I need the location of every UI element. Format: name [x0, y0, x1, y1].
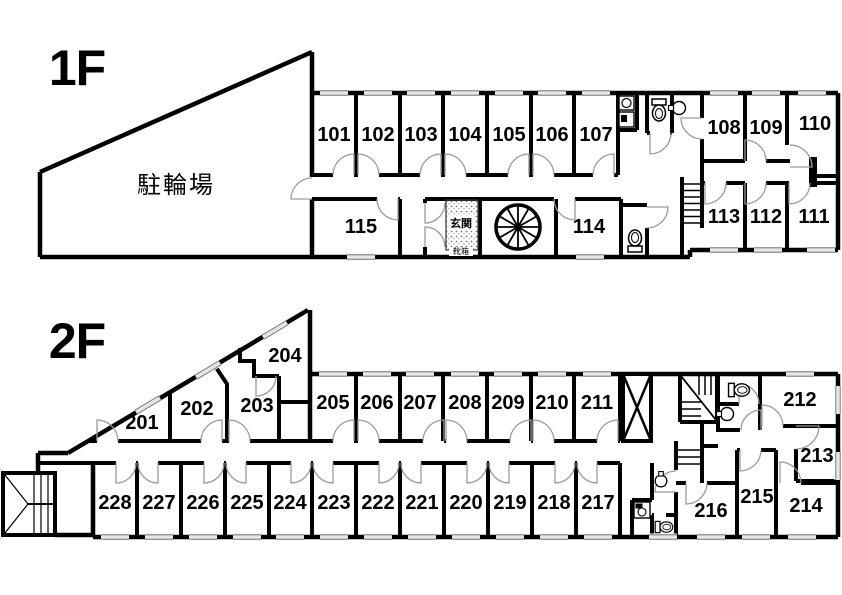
window: [835, 452, 842, 480]
room-label-107: 107: [579, 124, 612, 146]
window: [408, 534, 436, 541]
window: [649, 534, 677, 541]
room-label-204: 204: [268, 345, 302, 367]
window: [786, 371, 814, 378]
window: [347, 254, 375, 261]
room-label-215: 215: [740, 486, 773, 508]
toilet-icon: [628, 230, 642, 252]
bike-parking-label: 駐輪場: [137, 172, 215, 199]
room-label-226: 226: [186, 492, 219, 514]
elevator-shaft: [623, 374, 651, 441]
room-label-221: 221: [405, 492, 438, 514]
room-label-201: 201: [125, 412, 158, 434]
room-label-217: 217: [581, 492, 614, 514]
floor-plan-page: 玄関 靴箱 1F 駐輪場 101 102 103 104 105 106 107…: [0, 0, 842, 595]
window: [754, 247, 782, 254]
window: [452, 534, 480, 541]
window: [584, 534, 612, 541]
window: [451, 90, 479, 97]
window: [798, 90, 826, 97]
room-label-202: 202: [180, 398, 213, 420]
floor-title-1f: 1F: [49, 40, 105, 96]
room-label-211: 211: [581, 392, 613, 414]
laundry-sink-icons: [619, 96, 634, 127]
window: [788, 534, 816, 541]
floor-plan-svg: 玄関 靴箱 1F 駐輪場 101 102 103 104 105 106 107…: [0, 0, 842, 595]
room-label-101: 101: [317, 124, 350, 146]
room-label-104: 104: [448, 124, 482, 146]
window: [540, 534, 568, 541]
window: [538, 90, 566, 97]
window: [233, 534, 261, 541]
window: [320, 534, 348, 541]
room-label-223: 223: [317, 492, 350, 514]
room-label-205: 205: [316, 392, 349, 414]
stair-straight-1f: [683, 184, 701, 223]
room-label-228: 228: [98, 492, 131, 514]
window: [710, 90, 738, 97]
window: [583, 371, 611, 378]
window: [697, 534, 725, 541]
window: [189, 534, 217, 541]
window: [276, 534, 304, 541]
toilet-icon: [655, 521, 673, 532]
corridor-end-cap: [809, 157, 817, 187]
window: [406, 371, 434, 378]
window: [101, 534, 129, 541]
window: [710, 247, 738, 254]
window: [364, 534, 392, 541]
room-label-212: 212: [783, 389, 816, 411]
window: [582, 90, 610, 97]
window: [320, 90, 348, 97]
toilet-icon: [652, 99, 666, 121]
sink-cabinet-icon: [634, 502, 650, 518]
room-label-111: 111: [798, 206, 829, 228]
room-label-110: 110: [799, 113, 831, 135]
toilet-icon: [729, 383, 750, 396]
room-label-213: 213: [800, 445, 833, 467]
room-label-108: 108: [707, 117, 740, 139]
room-label-206: 206: [360, 392, 393, 414]
entrance-area: 玄関 靴箱: [446, 200, 478, 256]
room-label-225: 225: [230, 492, 263, 514]
room-label-214: 214: [789, 495, 823, 517]
spiral-staircase-icon: [496, 205, 540, 249]
window: [496, 534, 524, 541]
room-label-113: 113: [708, 206, 740, 228]
window: [835, 386, 842, 414]
room-label-207: 207: [403, 392, 436, 414]
window: [451, 371, 479, 378]
window: [807, 247, 835, 254]
window: [495, 90, 523, 97]
room-label-112: 112: [750, 206, 782, 228]
shoebox-label: 靴箱: [453, 246, 469, 256]
room-label-208: 208: [448, 392, 481, 414]
window: [752, 90, 780, 97]
room-label-102: 102: [361, 124, 394, 146]
window: [363, 371, 391, 378]
room-label-227: 227: [142, 492, 175, 514]
room-label-103: 103: [404, 124, 437, 146]
room-label-115: 115: [345, 216, 377, 238]
room-label-114: 114: [573, 216, 606, 238]
room-label-222: 222: [361, 492, 394, 514]
window: [364, 90, 392, 97]
window: [742, 534, 770, 541]
room-label-210: 210: [535, 392, 568, 414]
room-label-224: 224: [273, 492, 307, 514]
entrance-label: 玄関: [450, 216, 472, 230]
room-label-219: 219: [493, 492, 526, 514]
window: [576, 254, 604, 261]
room-label-106: 106: [535, 124, 568, 146]
room-label-203: 203: [240, 395, 273, 417]
window: [494, 371, 522, 378]
room-label-109: 109: [749, 117, 782, 139]
room-label-216: 216: [694, 500, 727, 522]
room-label-105: 105: [492, 124, 525, 146]
window: [407, 90, 435, 97]
window: [319, 371, 347, 378]
floor-title-2f: 2F: [49, 313, 105, 369]
room-label-218: 218: [537, 492, 570, 514]
window: [145, 534, 173, 541]
room-label-209: 209: [491, 392, 524, 414]
window: [538, 371, 566, 378]
room-label-220: 220: [449, 492, 482, 514]
